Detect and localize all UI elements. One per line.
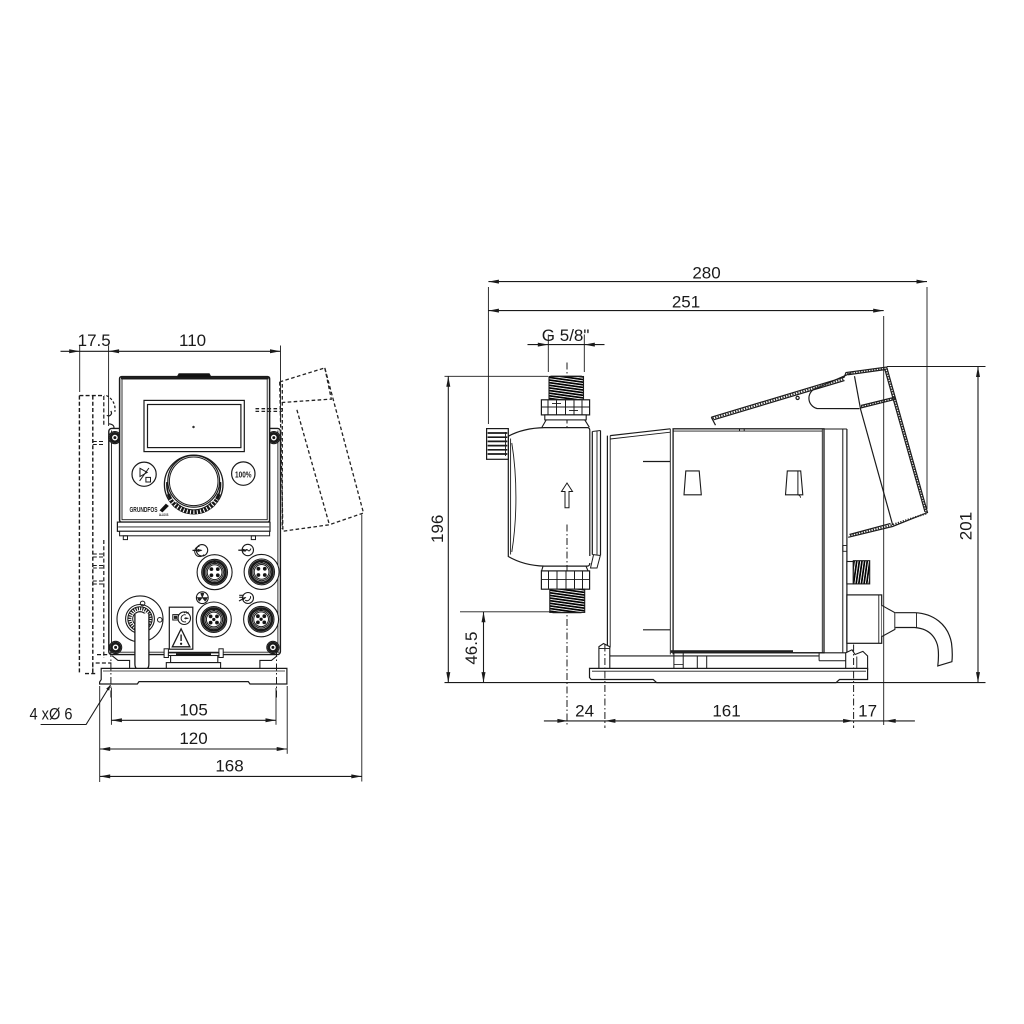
svg-text:17: 17 [858,701,877,720]
svg-text:120: 120 [179,729,207,748]
svg-text:GRUNDFOS: GRUNDFOS [130,505,158,514]
svg-text:24: 24 [575,701,594,720]
svg-text:46.5: 46.5 [462,632,481,665]
svg-text:110: 110 [179,331,206,350]
svg-text:168: 168 [215,756,243,775]
svg-text:17.5: 17.5 [78,331,111,350]
svg-text:105: 105 [179,700,207,719]
svg-text:251: 251 [672,293,700,312]
svg-text:ALLDOS: ALLDOS [159,513,169,517]
svg-text:100%: 100% [235,471,252,480]
svg-text:161: 161 [712,701,740,720]
svg-text:280: 280 [692,264,720,283]
svg-text:196: 196 [428,515,447,543]
svg-text:G 5/8": G 5/8" [542,326,590,345]
svg-text:4 xØ 6: 4 xØ 6 [30,706,73,724]
svg-text:201: 201 [956,512,975,540]
